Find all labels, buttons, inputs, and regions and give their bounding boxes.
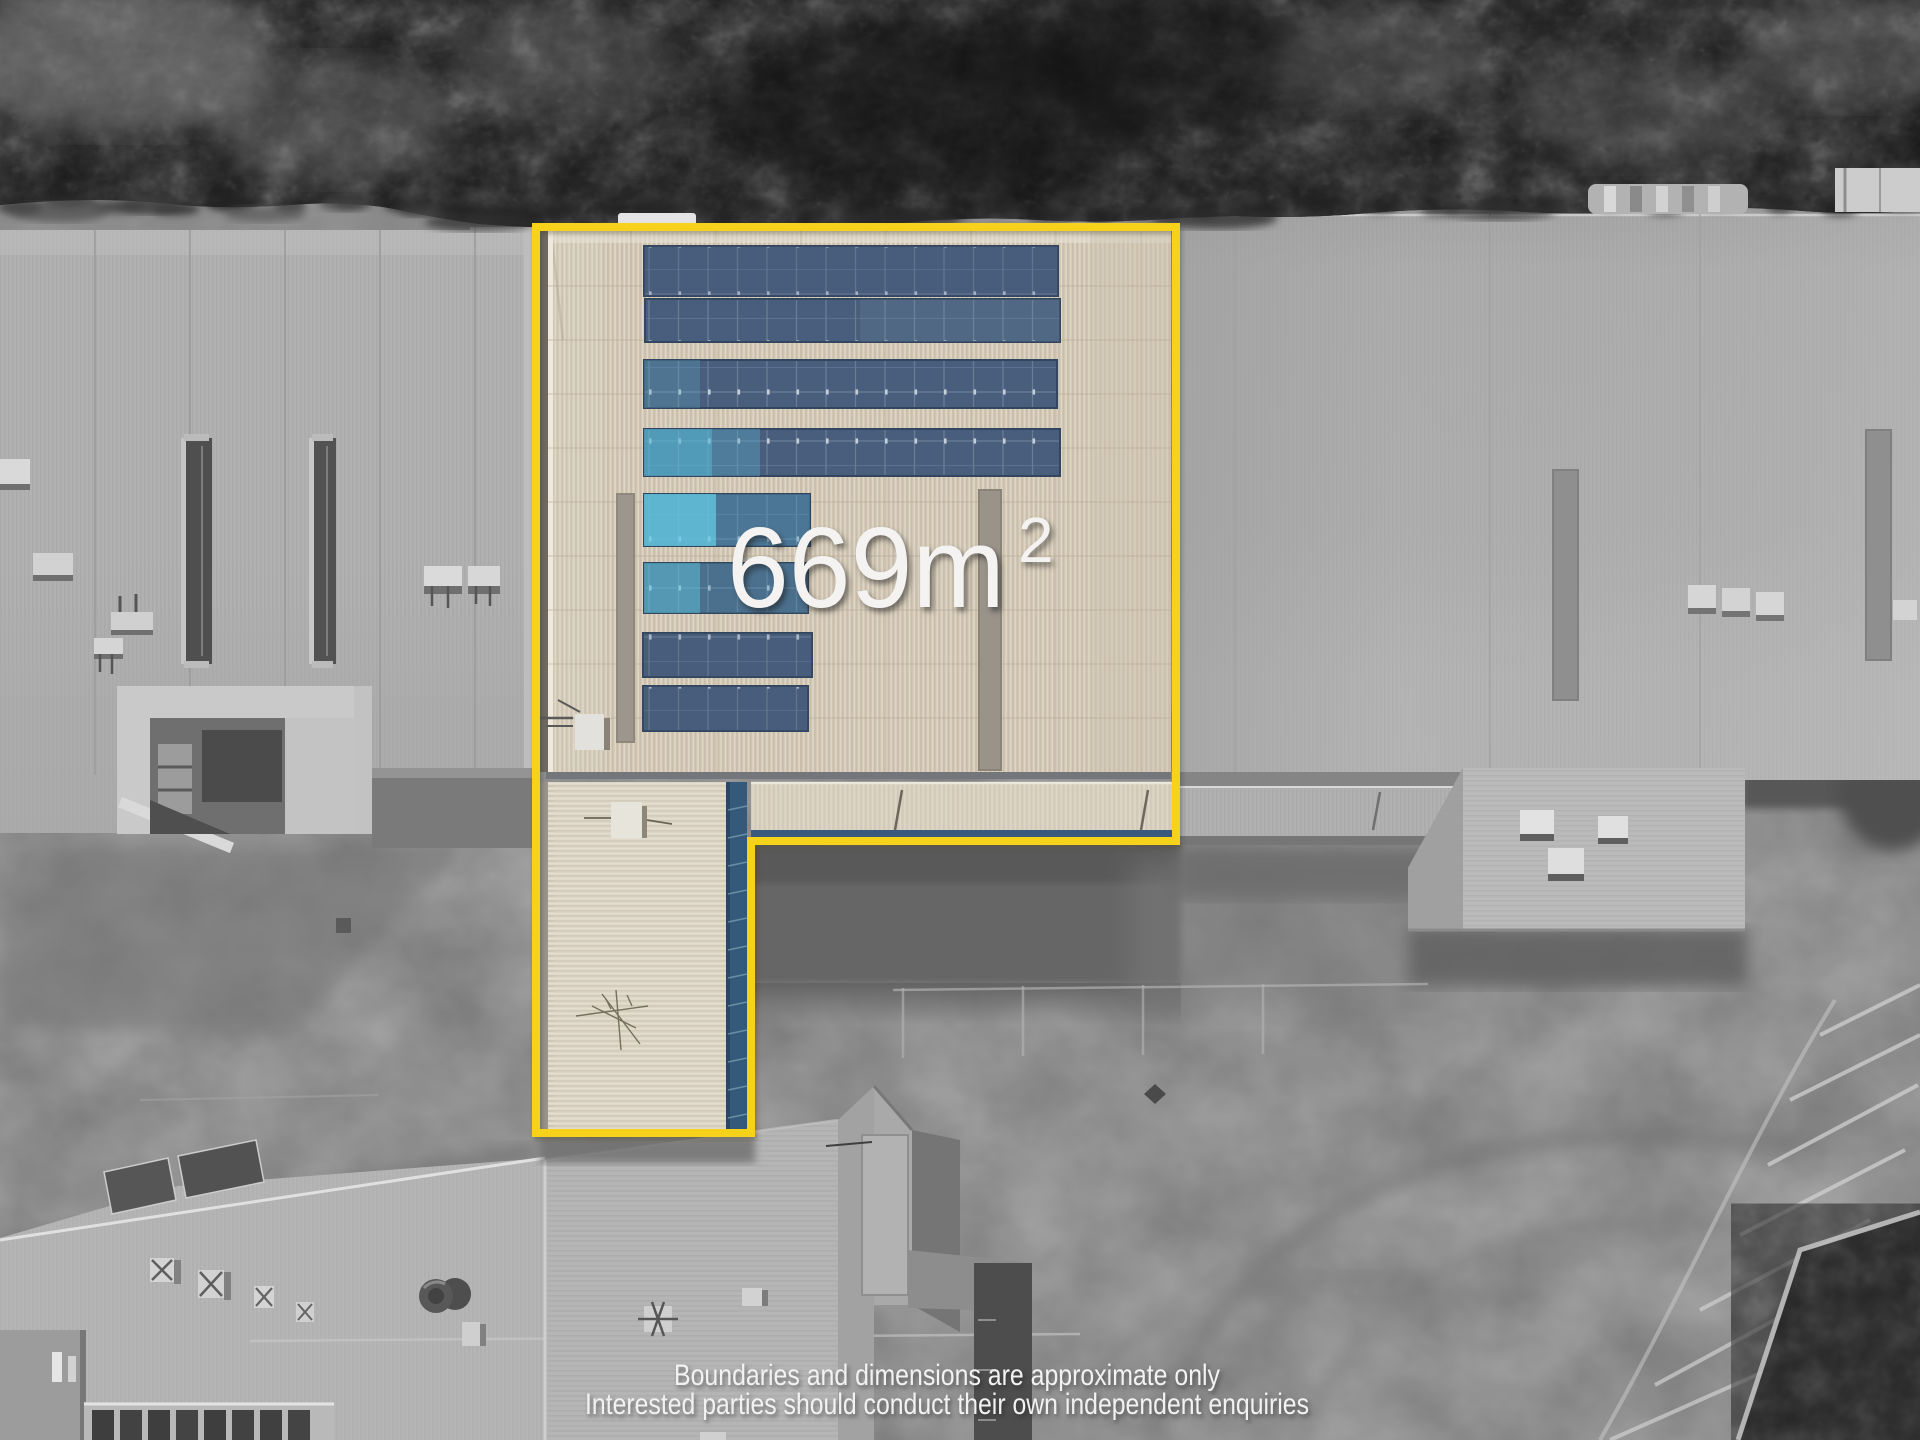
svg-text:2: 2 xyxy=(1018,504,1054,576)
svg-text:Interested parties should cond: Interested parties should conduct their … xyxy=(585,1388,1309,1421)
svg-text:669m: 669m xyxy=(727,505,1005,632)
